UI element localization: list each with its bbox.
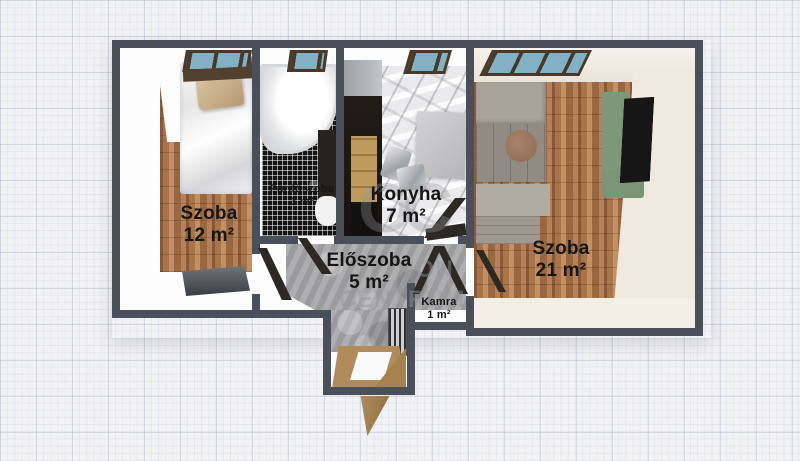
wall-extension-bottom [323,387,415,395]
room-name: Szoba [164,203,254,225]
fridge [344,60,382,98]
room-label-bedroom-large: Szoba 21 m² [515,238,607,283]
room-area: 1 m² [413,309,465,322]
large-bedroom-window [479,50,592,76]
round-rug [505,130,537,162]
room-name: Szoba [515,238,607,260]
entrance-door-swing [356,396,394,436]
room-area: 12 m² [164,225,254,247]
room-name: Konyha [366,184,446,206]
room-label-kitchen: Konyha 7 m² [366,184,446,229]
wall-outer-left [112,40,120,318]
room-area: 21 m² [515,260,607,282]
room-name: Fürdőszoba [266,183,338,196]
wall-outer-bottom-left [112,310,331,318]
wall-extension-left [323,310,331,395]
wall-outer-bottom-right [466,328,703,336]
room-label-pantry: Kamra 1 m² [413,296,465,322]
room-area: 5 m² [324,272,414,294]
wall-outer-right [695,40,703,336]
wardrobe-upper [476,82,546,124]
tv-screen [620,95,655,184]
room-label-hallway: Előszoba 5 m² [324,250,414,295]
wall-bath-kitchen-divider [336,40,344,244]
wall-pantry-bottom [407,322,474,330]
wall-hall-top-seg1 [260,236,298,244]
floorplan-canvas: OC OTTHON CENTRUM Szoba 12 m² Fürdőszoba… [0,0,800,461]
room-label-bathroom: Fürdőszoba 3 m² [266,183,338,209]
room-label-bedroom-small: Szoba 12 m² [164,203,254,248]
wall-outer-top [112,40,703,48]
room-name: Előszoba [324,250,414,272]
room-name: Kamra [413,296,465,309]
room-area: 7 m² [366,206,446,228]
large-bedroom-bottom-wall-face [474,298,695,328]
kitchen-window [403,50,452,74]
wall-bedroom-hall-stub-bottom [252,294,260,310]
bathroom-window [287,50,328,72]
room-area: 3 m² [266,196,338,209]
bench [476,184,550,216]
